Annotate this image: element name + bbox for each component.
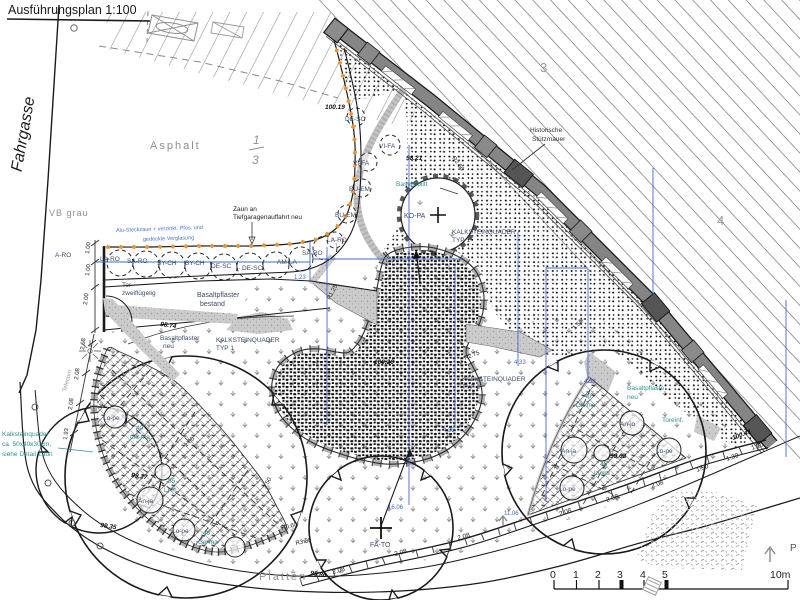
- svg-text:10m: 10m: [770, 569, 791, 581]
- svg-text:Ausführungsplan 1:100: Ausführungsplan 1:100: [8, 3, 137, 17]
- svg-text:SA-RO: SA-RO: [127, 258, 148, 265]
- svg-text:DE-SC: DE-SC: [211, 263, 232, 270]
- svg-text:Asphalt: Asphalt: [150, 140, 201, 152]
- svg-text:AM-LA: AM-LA: [277, 259, 298, 266]
- svg-text:KALKSTEINQUADER: KALKSTEINQUADER: [216, 337, 280, 344]
- svg-text:Ge-ma: Ge-ma: [130, 434, 150, 441]
- svg-text:Stützmauer: Stützmauer: [532, 136, 566, 143]
- svg-text:ca. 50x40x30cm,: ca. 50x40x30cm,: [2, 441, 51, 448]
- svg-text:Li-ms: Li-ms: [594, 470, 611, 477]
- svg-text:4: 4: [640, 569, 646, 581]
- svg-text:neu: neu: [627, 394, 638, 401]
- svg-text:LA-RO: LA-RO: [327, 237, 347, 244]
- svg-text:LA-RO: LA-RO: [100, 256, 120, 263]
- svg-text:Tor: Tor: [122, 282, 132, 289]
- svg-text:Kalksteinquader: Kalksteinquader: [2, 431, 49, 438]
- svg-text:3: 3: [540, 60, 547, 75]
- svg-text:Li-m: Li-m: [164, 487, 177, 494]
- svg-text:VI-FA: VI-FA: [379, 143, 396, 150]
- svg-text:SY-CH: SY-CH: [157, 260, 177, 267]
- svg-text:BU-EM: BU-EM: [349, 186, 370, 193]
- svg-text:KALKSTEINQUADER: KALKSTEINQUADER: [452, 229, 516, 236]
- svg-text:16.06: 16.06: [388, 505, 404, 511]
- svg-text:VB grau: VB grau: [49, 208, 89, 218]
- svg-text:Toreinf.: Toreinf.: [662, 417, 684, 424]
- svg-text:KALKSTEINQUADER: KALKSTEINQUADER: [462, 376, 526, 383]
- svg-text:45: 45: [600, 461, 608, 468]
- svg-text:5: 5: [662, 569, 668, 581]
- svg-text:99.62: 99.62: [610, 453, 627, 460]
- svg-text:1: 1: [253, 133, 260, 147]
- svg-text:3: 3: [252, 153, 259, 167]
- svg-text:VI-FA: VI-FA: [353, 160, 370, 167]
- svg-text:P: P: [790, 543, 797, 554]
- svg-text:Ge-ma: Ge-ma: [198, 539, 218, 546]
- svg-text:Basaltpflaster: Basaltpflaster: [197, 292, 240, 299]
- svg-text:Ca-ma: Ca-ma: [576, 402, 596, 409]
- svg-text:SY-CH: SY-CH: [185, 260, 205, 267]
- svg-text:40: 40: [203, 530, 211, 537]
- svg-text:4: 4: [717, 213, 724, 228]
- svg-text:An-jo: An-jo: [620, 421, 636, 428]
- svg-text:40: 40: [136, 425, 144, 432]
- svg-text:KO-PA: KO-PA: [404, 213, 426, 220]
- svg-text:A-RO: A-RO: [55, 252, 71, 259]
- svg-text:BU-EM: BU-EM: [335, 212, 356, 219]
- svg-text:40: 40: [584, 393, 592, 400]
- svg-text:TYP 1: TYP 1: [452, 237, 470, 244]
- svg-text:Lo-pe: Lo-pe: [103, 415, 120, 422]
- svg-text:An-ja: An-ja: [138, 498, 154, 505]
- svg-text:TYP 1: TYP 1: [216, 345, 234, 352]
- svg-text:Basaltpflaste: Basaltpflaste: [627, 385, 665, 392]
- svg-text:4.33: 4.33: [443, 428, 455, 434]
- svg-text:1.23: 1.23: [294, 275, 306, 281]
- svg-text:Basaltpflaster: Basaltpflaster: [160, 335, 200, 342]
- svg-text:Tiefgaragenauffahrt neu: Tiefgaragenauffahrt neu: [233, 214, 302, 221]
- svg-text:3: 3: [617, 569, 623, 581]
- svg-text:1: 1: [573, 569, 579, 581]
- svg-text:4.33: 4.33: [514, 360, 526, 366]
- svg-text:4.33: 4.33: [584, 379, 596, 385]
- svg-text:DE-SC: DE-SC: [345, 116, 366, 123]
- svg-text:siehe Detail Zaun: siehe Detail Zaun: [2, 451, 53, 458]
- svg-text:85: 85: [168, 478, 176, 485]
- svg-text:2: 2: [595, 569, 601, 581]
- svg-text:98.21: 98.21: [406, 155, 423, 162]
- svg-text:Zaun an: Zaun an: [233, 206, 257, 213]
- svg-text:TYP 2: TYP 2: [462, 384, 480, 391]
- svg-text:Lo-pe: Lo-pe: [172, 528, 189, 535]
- svg-text:FA-TO: FA-TO: [370, 542, 391, 549]
- svg-text:Historische: Historische: [530, 127, 563, 134]
- svg-text:11.06: 11.06: [504, 511, 519, 517]
- svg-text:Lo-pe: Lo-pe: [656, 448, 673, 455]
- svg-text:· DE-SC: · DE-SC: [238, 265, 263, 272]
- svg-text:Platten: Platten: [259, 571, 307, 583]
- svg-text:zweiflügelig: zweiflügelig: [122, 290, 156, 297]
- svg-text:bestand: bestand: [200, 301, 225, 308]
- svg-text:0: 0: [550, 569, 556, 581]
- svg-text:An-ja: An-ja: [561, 448, 577, 455]
- svg-text:100.26: 100.26: [374, 359, 394, 366]
- svg-text:100.19: 100.19: [325, 104, 345, 111]
- svg-text:Basaltsplitt: Basaltsplitt: [396, 181, 428, 188]
- svg-text:Lo-pe: Lo-pe: [559, 486, 576, 493]
- svg-text:neu: neu: [163, 343, 174, 350]
- svg-text:SA-RO: SA-RO: [302, 250, 323, 257]
